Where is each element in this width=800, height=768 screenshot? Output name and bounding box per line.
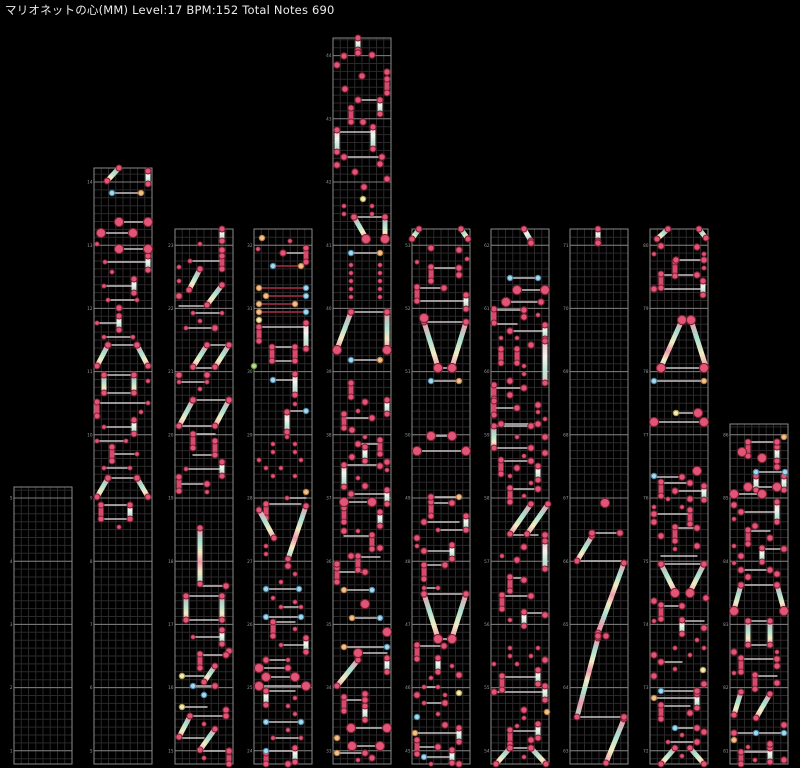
tap-note xyxy=(507,328,513,334)
bar-end-note xyxy=(341,425,347,431)
tap-note xyxy=(334,62,340,68)
chart-column-10: 818283848586 xyxy=(723,424,788,767)
bar-end-note xyxy=(362,444,368,450)
bar-end-note xyxy=(219,641,225,647)
bar-end-note xyxy=(463,306,469,312)
tap-note xyxy=(223,713,229,719)
slide-bar xyxy=(661,564,675,592)
bar-end-note xyxy=(355,35,361,41)
tap-note xyxy=(738,509,744,515)
bar-end-note xyxy=(449,542,455,548)
bar-end-note xyxy=(542,538,548,544)
tap-note xyxy=(456,247,462,253)
tap-note xyxy=(774,663,780,669)
tap-note xyxy=(198,387,202,391)
tap-note xyxy=(191,311,195,315)
tap-note xyxy=(699,363,708,372)
bar-end-note xyxy=(514,360,520,366)
tap-note xyxy=(767,567,773,573)
tap-note xyxy=(362,399,368,405)
tap-note xyxy=(375,741,384,750)
slide-bar xyxy=(756,694,770,718)
measure-label: 4 xyxy=(10,559,13,564)
bar-end-note xyxy=(542,697,548,703)
measure-label: 69 xyxy=(563,369,569,374)
measure-label: 52 xyxy=(405,306,411,311)
tap-note xyxy=(414,535,420,541)
tap-note xyxy=(685,588,694,597)
tap-note xyxy=(342,212,346,216)
tap-note xyxy=(351,214,357,220)
tap-note xyxy=(779,606,788,615)
tap-note xyxy=(429,762,433,766)
tap-note xyxy=(617,530,623,536)
tap-note xyxy=(254,681,263,690)
bar-end-note xyxy=(514,346,520,352)
bar-end-note xyxy=(491,382,497,388)
bar-end-note xyxy=(542,380,548,386)
chart-canvas: 1234556789101112131415161718192021222324… xyxy=(0,0,800,768)
chart-column-3: 151617181920212223 xyxy=(168,226,233,767)
tap-note xyxy=(701,561,707,567)
bar-end-note xyxy=(524,531,530,537)
flick-note-orange xyxy=(334,750,339,755)
tap-note xyxy=(670,588,679,597)
tap-note xyxy=(673,547,677,551)
bar-end-note xyxy=(94,399,100,405)
tap-note xyxy=(529,481,533,485)
tap-note xyxy=(463,591,469,597)
measure-label: 29 xyxy=(247,432,253,437)
bar-end-note xyxy=(745,527,751,533)
flick-note-blue xyxy=(201,692,206,697)
flick-note-blue xyxy=(414,714,419,719)
bar-end-note xyxy=(226,761,232,767)
bar-end-note xyxy=(201,679,207,685)
bar-end-note xyxy=(348,105,354,111)
bar-end-note xyxy=(212,452,218,458)
bar-end-note xyxy=(292,344,298,350)
tap-note xyxy=(651,511,657,517)
tap-note xyxy=(421,548,427,554)
tap-note xyxy=(367,497,376,506)
tap-note xyxy=(732,544,736,548)
measure-label: 31 xyxy=(247,306,253,311)
tap-note xyxy=(441,643,447,649)
tap-note xyxy=(456,265,462,271)
tap-note xyxy=(515,336,519,340)
tap-note xyxy=(256,247,260,251)
bar-end-note xyxy=(212,364,218,370)
tap-note xyxy=(96,228,105,237)
tap-note xyxy=(436,712,440,716)
measure-label: 55 xyxy=(484,685,490,690)
tap-note xyxy=(732,561,736,565)
tap-note xyxy=(380,234,389,243)
tap-note xyxy=(673,257,679,263)
tap-note xyxy=(589,530,595,536)
bar-end-note xyxy=(409,236,415,242)
bar-end-note xyxy=(658,285,664,291)
tap-note xyxy=(290,672,299,681)
tap-note xyxy=(508,646,512,650)
tap-note xyxy=(257,458,261,462)
bar-end-note xyxy=(542,683,548,689)
bar-end-note xyxy=(369,546,375,552)
bar-end-note xyxy=(745,541,751,547)
bar-end-note xyxy=(414,284,420,290)
measure-label: 79 xyxy=(643,306,649,311)
measure-label: 13 xyxy=(87,243,93,248)
bar-end-note xyxy=(701,761,707,767)
slide-bar xyxy=(598,563,624,633)
tap-note xyxy=(687,496,693,502)
flick-note-blue xyxy=(296,586,301,591)
measure-label: 51 xyxy=(405,369,411,374)
tap-note xyxy=(426,431,435,440)
bar-end-note xyxy=(384,411,390,417)
tap-note xyxy=(595,633,601,639)
bar-end-note xyxy=(270,619,276,625)
tap-note xyxy=(271,474,275,478)
bar-end-note xyxy=(190,445,196,451)
tap-note xyxy=(279,605,283,609)
tap-note xyxy=(106,298,110,302)
measure-label: 46 xyxy=(405,685,411,690)
tap-note xyxy=(184,467,188,471)
measure-label: 81 xyxy=(723,748,729,753)
tap-note xyxy=(521,385,527,391)
tap-note xyxy=(456,761,462,767)
tap-note xyxy=(356,529,360,533)
tap-note xyxy=(421,519,427,525)
bar-end-note xyxy=(212,726,218,732)
bar-end-note xyxy=(183,593,189,599)
bar-end-note xyxy=(303,503,309,509)
tap-note xyxy=(651,673,657,679)
tap-note xyxy=(177,265,181,269)
bar-end-note xyxy=(507,574,513,580)
slide-bar xyxy=(200,729,215,750)
measure-label: 65 xyxy=(563,622,569,627)
tap-note xyxy=(435,744,441,750)
tap-note xyxy=(355,441,361,447)
bar-end-note xyxy=(535,721,541,727)
tap-note xyxy=(135,298,139,302)
slide-bar xyxy=(207,285,222,305)
measure-label: 21 xyxy=(168,369,174,374)
bar-end-note xyxy=(116,165,122,171)
bar-end-note xyxy=(370,124,376,130)
tap-note xyxy=(508,474,512,478)
tap-note xyxy=(774,571,780,577)
tap-note xyxy=(508,654,512,658)
tap-note xyxy=(223,707,229,713)
tap-note xyxy=(701,681,707,687)
flick-note-yellow xyxy=(456,690,461,695)
tap-note xyxy=(378,295,382,299)
flick-note-blue xyxy=(298,614,303,619)
tap-note xyxy=(382,345,391,354)
tap-note xyxy=(379,154,385,160)
bar-end-note xyxy=(498,457,504,463)
tap-note xyxy=(738,553,744,559)
measure-label: 28 xyxy=(247,496,253,501)
bar-end-note xyxy=(384,397,390,403)
bar-end-note xyxy=(463,292,469,298)
bar-end-note xyxy=(694,705,700,711)
bar-end-note xyxy=(197,581,203,587)
tap-note xyxy=(286,728,290,732)
bar-end-note xyxy=(116,327,122,333)
bar-end-note xyxy=(284,409,290,415)
tap-note xyxy=(271,442,275,446)
bar-end-note xyxy=(377,437,383,443)
flick-note-blue xyxy=(781,730,786,735)
tap-note xyxy=(731,502,737,508)
measure-label: 22 xyxy=(168,306,174,311)
tap-note xyxy=(254,663,263,672)
flick-note-blue xyxy=(190,683,195,688)
flick-note-orange xyxy=(256,309,261,314)
measure-label: 60 xyxy=(484,369,490,374)
bar-end-note xyxy=(94,413,100,419)
tap-note xyxy=(542,434,548,440)
tap-note xyxy=(279,580,283,584)
measure-label: 5 xyxy=(90,748,93,753)
bar-end-note xyxy=(369,532,375,538)
tap-note xyxy=(384,69,390,75)
tap-note xyxy=(299,736,303,740)
bar-end-note xyxy=(414,751,420,757)
tap-note xyxy=(507,745,513,751)
measure-label: 27 xyxy=(247,559,253,564)
tap-note xyxy=(701,625,707,631)
tap-note xyxy=(701,257,707,263)
bar-end-note xyxy=(186,287,192,293)
bar-end-note xyxy=(219,266,225,272)
measure-label: 5 xyxy=(10,496,13,501)
tap-note xyxy=(356,758,360,762)
bar-end-note xyxy=(271,535,277,541)
tap-note xyxy=(360,599,369,608)
bar-end-note xyxy=(176,474,182,480)
bar-end-note xyxy=(219,593,225,599)
chart-column-2: 567891011121314 xyxy=(87,165,152,764)
tap-note xyxy=(370,204,374,208)
tap-note xyxy=(415,544,419,548)
measure-label: 11 xyxy=(87,369,93,374)
tap-note xyxy=(515,724,519,728)
measure-label: 53 xyxy=(405,243,411,248)
tap-note xyxy=(334,162,340,168)
tap-note xyxy=(436,586,440,590)
tap-note xyxy=(774,464,780,470)
tap-note xyxy=(114,217,123,226)
tap-note xyxy=(514,405,520,411)
tap-note xyxy=(352,169,358,175)
tap-note xyxy=(672,488,678,494)
tap-note xyxy=(522,755,526,759)
bar-end-note xyxy=(449,747,455,753)
bar-end-note xyxy=(303,649,309,655)
flick-note-yellow xyxy=(360,196,365,201)
bar-end-note xyxy=(176,423,182,429)
bar-end-note xyxy=(428,513,434,519)
bar-end-note xyxy=(535,463,541,469)
bar-end-note xyxy=(416,226,422,232)
bar-end-note xyxy=(414,737,420,743)
tap-note xyxy=(702,266,706,270)
flick-note-blue xyxy=(263,748,268,753)
measure-label: 30 xyxy=(247,369,253,374)
tap-note xyxy=(362,750,368,756)
tap-note xyxy=(143,244,152,253)
tap-note xyxy=(360,119,366,125)
tap-note xyxy=(443,693,447,697)
tap-note xyxy=(528,458,534,464)
bar-end-note xyxy=(745,439,751,445)
tap-note xyxy=(223,652,229,658)
bar-end-note xyxy=(507,727,513,733)
tap-note xyxy=(384,309,390,315)
tap-note xyxy=(422,586,426,590)
tap-note xyxy=(116,305,122,311)
bar-end-note xyxy=(458,226,464,232)
tap-note xyxy=(677,315,686,324)
tap-note xyxy=(694,244,700,250)
bar-end-note xyxy=(545,501,551,507)
tap-note xyxy=(450,664,454,668)
bar-end-note xyxy=(738,761,744,767)
measure-label: 68 xyxy=(563,432,569,437)
bar-end-note xyxy=(535,667,541,673)
bar-end-note xyxy=(303,245,309,251)
tap-note xyxy=(263,657,269,663)
tap-note xyxy=(753,758,757,762)
tap-note xyxy=(176,372,182,378)
tap-note xyxy=(428,245,434,251)
bar-end-note xyxy=(384,501,390,507)
bar-end-note xyxy=(219,459,225,465)
measure-label: 19 xyxy=(168,496,174,501)
bar-end-note xyxy=(116,313,122,319)
bar-end-note xyxy=(456,739,462,745)
tap-note xyxy=(362,569,368,575)
tap-note xyxy=(522,364,526,368)
flick-note-blue xyxy=(782,469,787,474)
measure-label: 35 xyxy=(326,622,332,627)
bar-end-note xyxy=(256,507,262,513)
tap-note xyxy=(600,498,609,507)
bar-end-note xyxy=(456,725,462,731)
bar-end-note xyxy=(672,524,678,530)
bar-end-note xyxy=(197,525,203,531)
measure-label: 71 xyxy=(563,243,569,248)
tap-note xyxy=(540,285,549,294)
bar-end-note xyxy=(767,759,773,765)
tap-note xyxy=(456,672,462,678)
tap-note xyxy=(731,649,737,655)
bar-end-note xyxy=(654,236,660,242)
bar-end-note xyxy=(759,559,765,565)
tap-note xyxy=(361,234,370,243)
tap-note xyxy=(128,228,137,237)
chart-column-1: 12345 xyxy=(10,487,72,764)
bar-end-note xyxy=(621,560,627,566)
bar-end-note xyxy=(507,499,513,505)
measure-label: 32 xyxy=(247,243,253,248)
tap-note xyxy=(349,279,353,283)
bar-end-note xyxy=(377,451,383,457)
measure-label: 8 xyxy=(90,559,93,564)
measure-label: 15 xyxy=(168,748,174,753)
bar-end-note xyxy=(204,302,210,308)
tap-note xyxy=(212,325,218,331)
bar-end-note xyxy=(131,372,137,378)
bar-end-note xyxy=(334,127,340,133)
tap-note xyxy=(521,314,527,320)
bar-end-note xyxy=(190,364,196,370)
tap-note xyxy=(285,496,289,500)
tap-note xyxy=(449,500,455,506)
tap-note xyxy=(117,525,121,529)
tap-note xyxy=(349,427,355,433)
bar-end-note xyxy=(499,673,505,679)
bar-end-note xyxy=(672,273,678,279)
bar-end-note xyxy=(127,516,133,522)
bar-end-note xyxy=(384,655,390,661)
tap-note xyxy=(414,692,420,698)
tap-note xyxy=(95,321,99,325)
tap-note xyxy=(732,671,736,675)
tap-note xyxy=(521,307,527,313)
flick-note-blue xyxy=(303,309,308,314)
flick-note-orange xyxy=(341,644,346,649)
tap-note xyxy=(447,431,456,440)
bar-end-note xyxy=(98,516,104,522)
bar-end-note xyxy=(101,372,107,378)
tap-note xyxy=(529,654,533,658)
bar-end-note xyxy=(382,214,388,220)
tap-note xyxy=(521,707,527,713)
tap-note xyxy=(346,723,355,732)
bar-end-note xyxy=(362,458,368,464)
bar-end-note xyxy=(127,502,133,508)
tap-note xyxy=(422,701,426,705)
tap-note xyxy=(293,402,297,406)
bar-end-note xyxy=(499,592,505,598)
flick-note-blue xyxy=(270,377,275,382)
measure-label: 56 xyxy=(484,622,490,627)
flick-note-yellow xyxy=(179,704,184,709)
bar-end-note xyxy=(187,713,193,719)
tap-note xyxy=(362,483,368,489)
tap-note xyxy=(738,582,744,588)
flick-note-blue xyxy=(263,614,268,619)
tap-note xyxy=(522,716,526,720)
tap-note xyxy=(498,421,504,427)
measure-label: 16 xyxy=(168,685,174,690)
tap-note xyxy=(442,722,448,728)
flick-note-orange xyxy=(377,357,382,362)
flick-note-blue xyxy=(263,586,268,591)
tap-note xyxy=(369,755,375,761)
tap-note xyxy=(285,665,291,671)
tap-note xyxy=(535,486,541,492)
chart-column-6: 454647484950515253 xyxy=(405,226,471,767)
tap-note xyxy=(542,532,548,538)
